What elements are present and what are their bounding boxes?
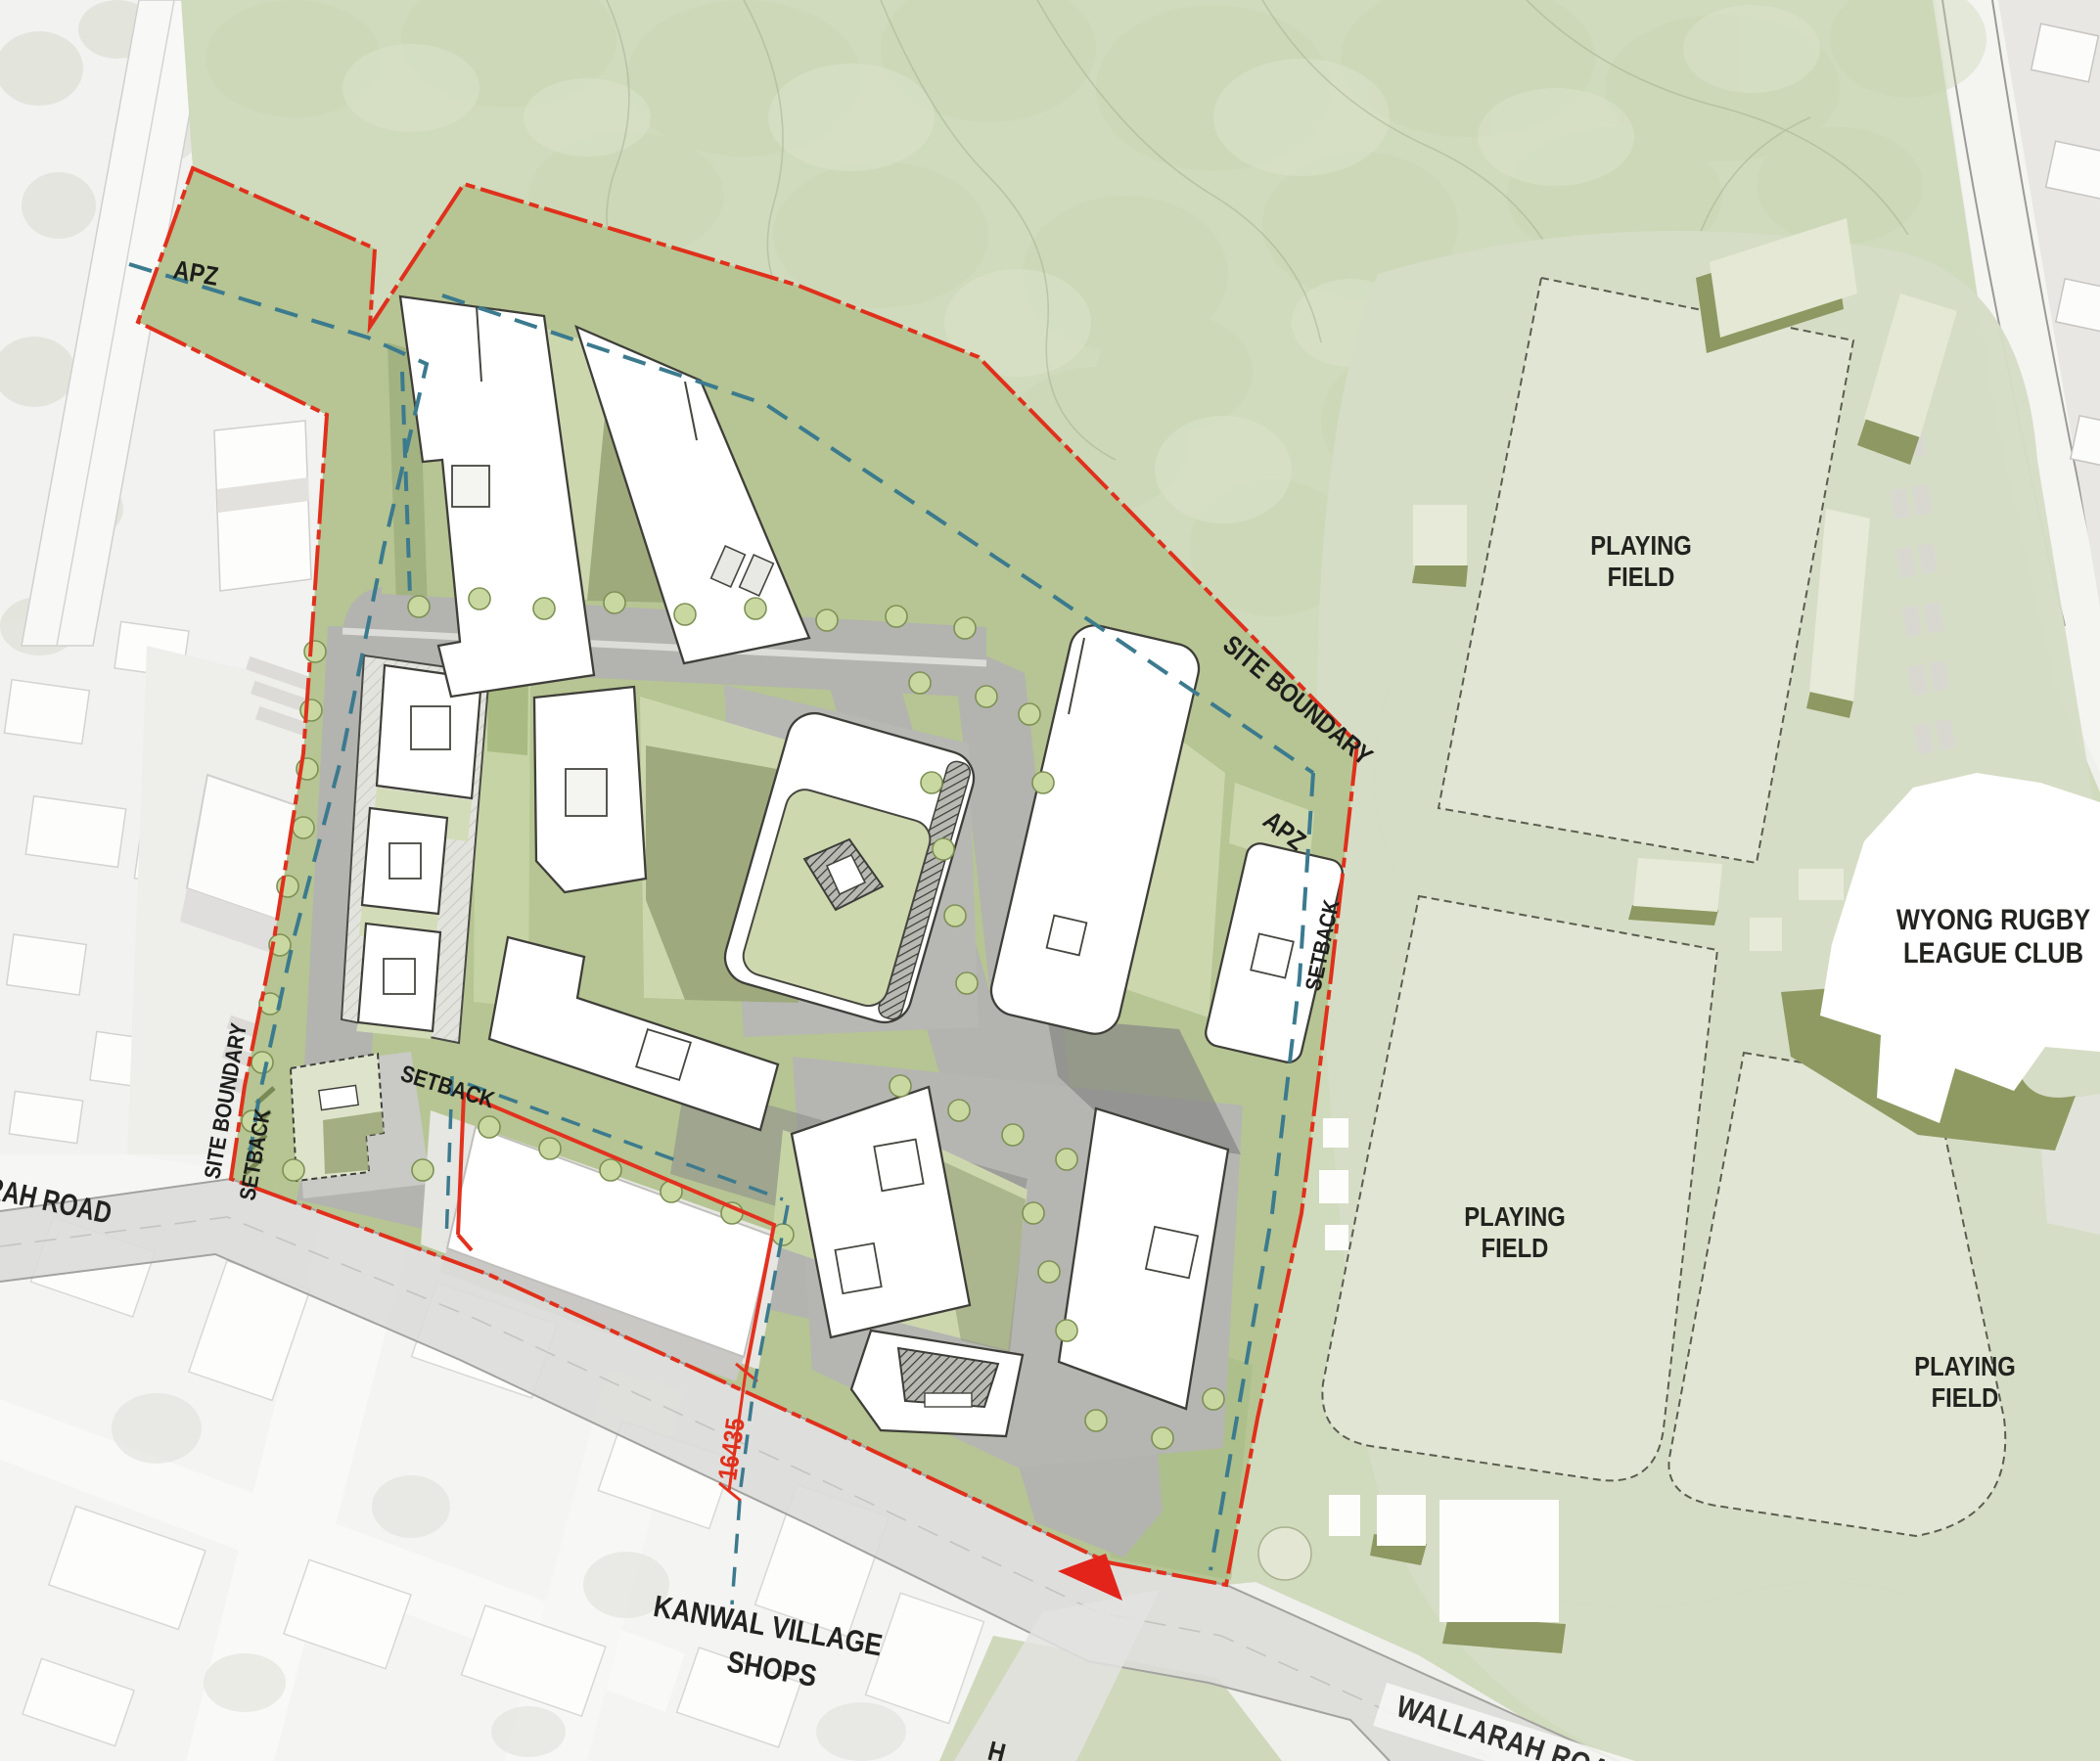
svg-text:PLAYING: PLAYING: [1590, 529, 1692, 561]
svg-text:WYONG RUGBY: WYONG RUGBY: [1896, 903, 2091, 935]
svg-text:PLAYING: PLAYING: [1914, 1350, 2016, 1381]
svg-text:LEAGUE CLUB: LEAGUE CLUB: [1903, 936, 2083, 969]
svg-text:FIELD: FIELD: [1932, 1381, 1999, 1413]
svg-text:PLAYING: PLAYING: [1464, 1200, 1566, 1232]
svg-text:FIELD: FIELD: [1608, 561, 1675, 592]
svg-text:FIELD: FIELD: [1482, 1232, 1549, 1263]
